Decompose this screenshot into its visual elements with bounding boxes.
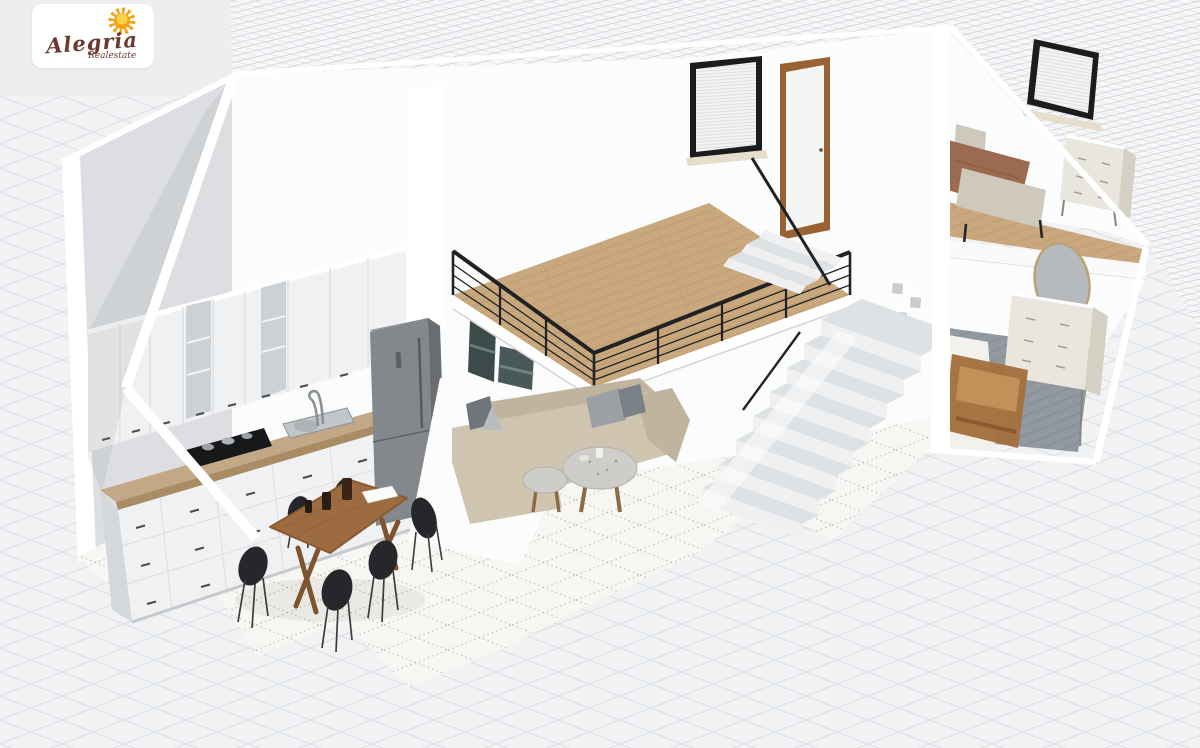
logo-tagline-text: Realestate	[88, 51, 136, 61]
left-wall-cut-face	[932, 24, 950, 452]
upper-window	[686, 56, 768, 166]
wall-opening	[408, 86, 446, 342]
floorplan-3d-viewport[interactable]: Alegria Realestate	[0, 0, 1200, 748]
agency-logo: Alegria Realestate	[32, 4, 154, 68]
vase	[596, 448, 603, 458]
floorplan-scene[interactable]	[0, 0, 1200, 748]
wooden-door	[780, 57, 830, 240]
glass-door	[261, 281, 286, 398]
vase	[342, 478, 352, 500]
vase	[322, 492, 331, 510]
glass-door	[186, 300, 211, 419]
vase	[305, 500, 312, 513]
